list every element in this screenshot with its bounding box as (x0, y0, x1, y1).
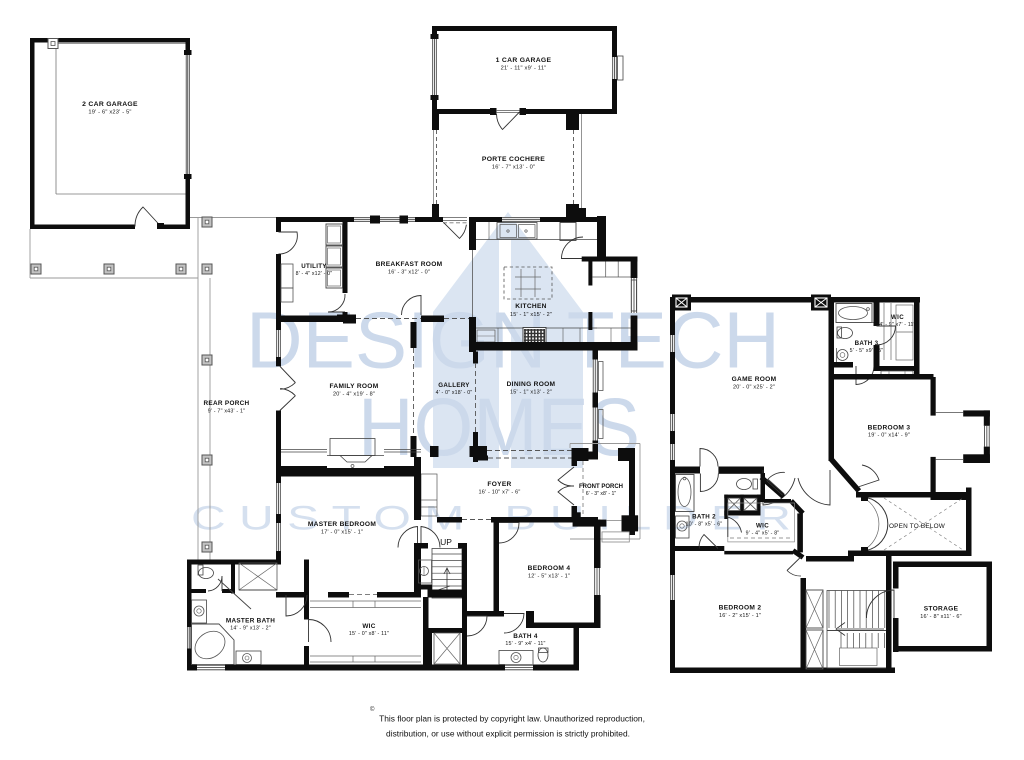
svg-text:10' - 8" x5' - 6": 10' - 8" x5' - 6" (686, 521, 723, 527)
svg-text:©: © (370, 706, 375, 713)
svg-text:GAME ROOM: GAME ROOM (732, 376, 777, 383)
svg-text:PORTE COCHERE: PORTE COCHERE (482, 156, 545, 163)
svg-text:DINING ROOM: DINING ROOM (507, 381, 556, 388)
svg-text:12' - 5" x13' - 1": 12' - 5" x13' - 1" (528, 573, 570, 579)
svg-text:BATH 4: BATH 4 (513, 633, 538, 640)
svg-text:BATH 2: BATH 2 (692, 514, 716, 521)
svg-text:BREAKFAST ROOM: BREAKFAST ROOM (376, 261, 443, 268)
svg-text:REAR PORCH: REAR PORCH (204, 400, 250, 407)
svg-text:16' - 2" x15' - 1": 16' - 2" x15' - 1" (719, 613, 761, 619)
svg-text:BEDROOM 4: BEDROOM 4 (528, 565, 571, 572)
svg-text:20' - 4" x19' - 8": 20' - 4" x19' - 8" (333, 391, 375, 397)
svg-text:15' - 0" x8' - 11": 15' - 0" x8' - 11" (349, 631, 389, 637)
svg-text:14' - 9" x13' - 2": 14' - 9" x13' - 2" (230, 626, 271, 632)
svg-text:1 CAR GARAGE: 1 CAR GARAGE (496, 57, 552, 64)
svg-text:16' - 3" x12' - 0": 16' - 3" x12' - 0" (388, 269, 430, 275)
svg-text:UP: UP (440, 537, 452, 547)
svg-text:19' - 6" x23' - 5": 19' - 6" x23' - 5" (88, 109, 131, 115)
svg-text:8' - 4" x12' - 0": 8' - 4" x12' - 0" (296, 271, 333, 277)
svg-text:MASTER BEDROOM: MASTER BEDROOM (308, 521, 377, 528)
svg-text:16' - 8" x11' - 6": 16' - 8" x11' - 6" (920, 614, 962, 620)
svg-text:OPEN TO BELOW: OPEN TO BELOW (889, 523, 946, 530)
svg-text:4' - 9" x7' - 11": 4' - 9" x7' - 11" (879, 322, 915, 328)
svg-text:STORAGE: STORAGE (924, 606, 959, 613)
svg-text:BEDROOM 3: BEDROOM 3 (868, 425, 911, 432)
svg-text:BATH 3: BATH 3 (855, 340, 879, 347)
svg-text:WIC: WIC (891, 314, 904, 321)
svg-text:KITCHEN: KITCHEN (515, 303, 546, 310)
svg-text:MASTER BATH: MASTER BATH (226, 618, 275, 625)
svg-text:GALLERY: GALLERY (438, 382, 470, 389)
svg-text:This floor plan is protected b: This floor plan is protected by copyrigh… (379, 714, 645, 724)
svg-text:BEDROOM 2: BEDROOM 2 (719, 605, 762, 612)
svg-text:15' - 1" x15' - 2": 15' - 1" x15' - 2" (510, 312, 552, 318)
svg-text:16' - 10" x7' - 6": 16' - 10" x7' - 6" (478, 489, 520, 495)
svg-text:15' - 1" x13' - 2": 15' - 1" x13' - 2" (510, 389, 552, 395)
svg-text:4' - 0" x18' - 0": 4' - 0" x18' - 0" (436, 390, 473, 396)
svg-text:16' - 7" x13' - 0": 16' - 7" x13' - 0" (492, 164, 535, 170)
svg-text:20' - 0" x25' - 2": 20' - 0" x25' - 2" (733, 385, 775, 391)
svg-text:15' - 9" x4' - 11": 15' - 9" x4' - 11" (505, 641, 545, 647)
svg-text:9' - 7" x43' - 1": 9' - 7" x43' - 1" (208, 408, 245, 414)
svg-text:WIC: WIC (756, 523, 769, 530)
svg-text:UTILITY: UTILITY (301, 263, 327, 270)
svg-text:WIC: WIC (362, 623, 375, 630)
svg-text:21' - 11" x9' - 11": 21' - 11" x9' - 11" (501, 65, 547, 71)
svg-text:19' - 0" x14' - 9": 19' - 0" x14' - 9" (868, 433, 910, 439)
svg-text:6' - 3" x8' - 1": 6' - 3" x8' - 1" (586, 491, 617, 497)
svg-text:2 CAR GARAGE: 2 CAR GARAGE (82, 101, 138, 108)
svg-text:DESIGN TECH: DESIGN TECH (246, 296, 780, 385)
svg-text:FRONT PORCH: FRONT PORCH (579, 484, 623, 490)
svg-text:9' - 4" x5' - 8": 9' - 4" x5' - 8" (746, 530, 780, 536)
svg-text:17' - 0" x15' - 1": 17' - 0" x15' - 1" (321, 529, 363, 535)
svg-text:5' - 5" x9' - 5": 5' - 5" x9' - 5" (850, 348, 884, 354)
svg-text:FAMILY ROOM: FAMILY ROOM (329, 383, 378, 390)
svg-text:FOYER: FOYER (487, 481, 511, 488)
svg-text:distribution, or use without e: distribution, or use without explicit pe… (386, 729, 630, 739)
